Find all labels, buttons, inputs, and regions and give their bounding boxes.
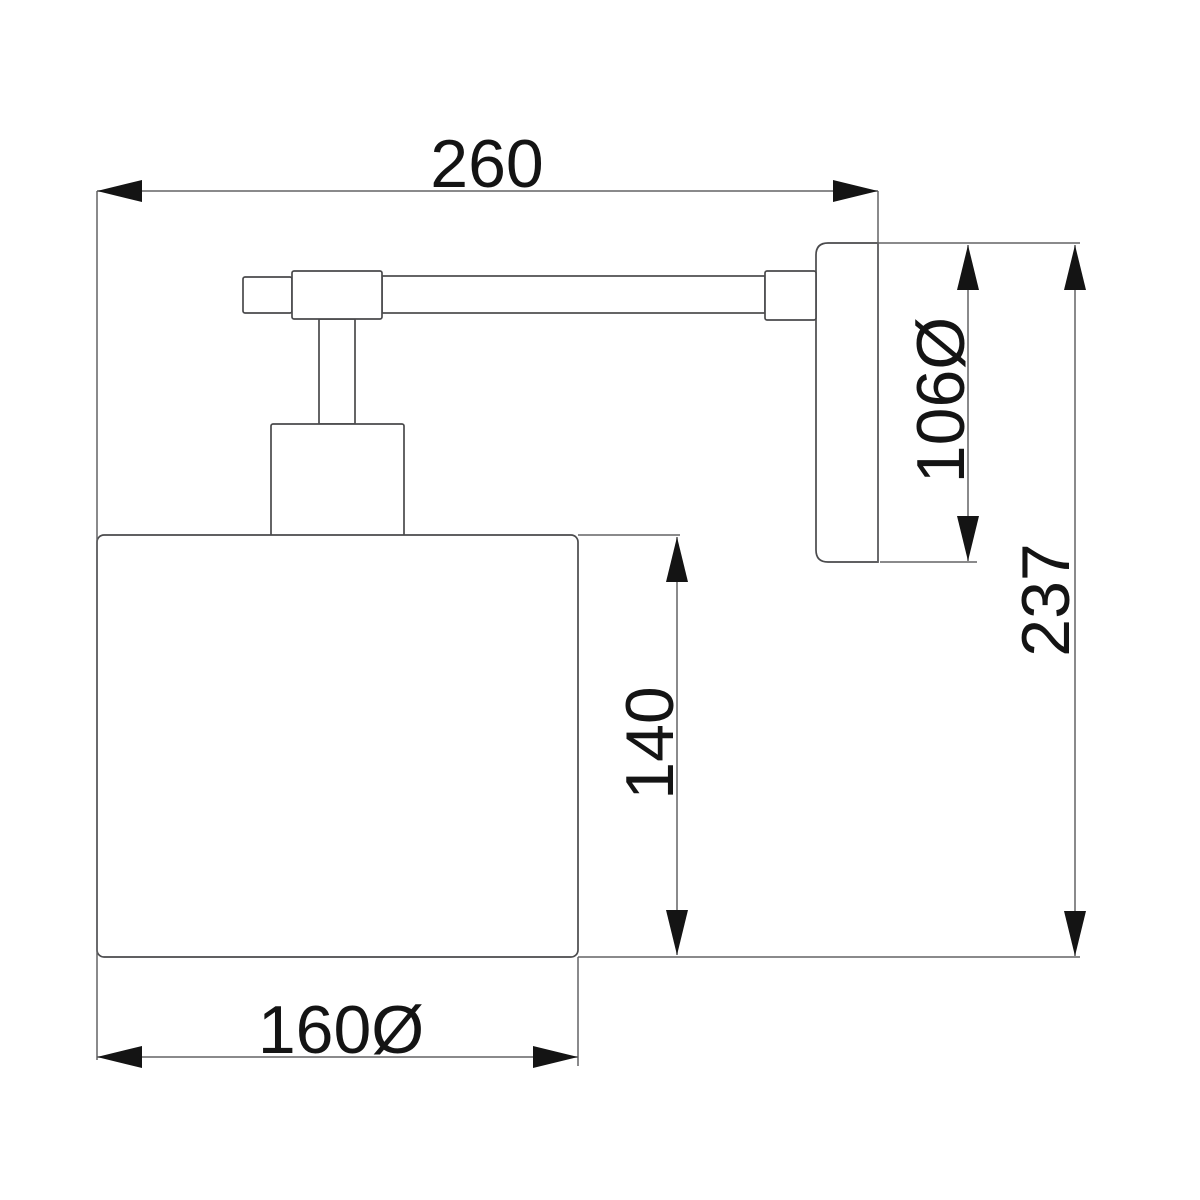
technical-drawing: 260 106Ø 237 140 bbox=[0, 0, 1200, 1200]
dim-label-backplate-diameter: 106Ø bbox=[903, 317, 979, 483]
arm-bar bbox=[382, 276, 765, 313]
pivot-block bbox=[292, 271, 382, 319]
arrow-up-icon bbox=[1064, 245, 1086, 290]
arrow-left-icon bbox=[97, 1046, 142, 1068]
dim-label-shade-height: 140 bbox=[612, 686, 688, 799]
arm-wall-connector bbox=[765, 271, 816, 320]
dimension-backplate-diameter: 106Ø bbox=[878, 243, 1080, 562]
arrow-up-icon bbox=[957, 245, 979, 290]
arm-end-cap bbox=[243, 277, 292, 313]
arrow-down-icon bbox=[666, 910, 688, 955]
dimension-shade-height: 140 bbox=[578, 535, 1080, 957]
wall-plate bbox=[816, 243, 878, 562]
dim-label-shade-diameter: 160Ø bbox=[258, 992, 424, 1068]
dim-label-arm-projection: 260 bbox=[430, 126, 543, 202]
arrow-left-icon bbox=[97, 180, 142, 202]
dim-label-overall-height: 237 bbox=[1008, 543, 1084, 656]
arrow-down-icon bbox=[957, 516, 979, 561]
dimension-shade-diameter: 160Ø bbox=[97, 957, 578, 1068]
stem bbox=[319, 319, 355, 424]
arrow-right-icon bbox=[533, 1046, 578, 1068]
socket-block bbox=[271, 424, 404, 536]
lampshade bbox=[97, 535, 578, 957]
lamp-outline bbox=[97, 243, 878, 957]
dimension-overall-height: 237 bbox=[1008, 245, 1086, 956]
arrow-up-icon bbox=[666, 537, 688, 582]
arrow-right-icon bbox=[833, 180, 878, 202]
drawing-canvas: 260 106Ø 237 140 bbox=[0, 0, 1200, 1200]
arrow-down-icon bbox=[1064, 911, 1086, 956]
